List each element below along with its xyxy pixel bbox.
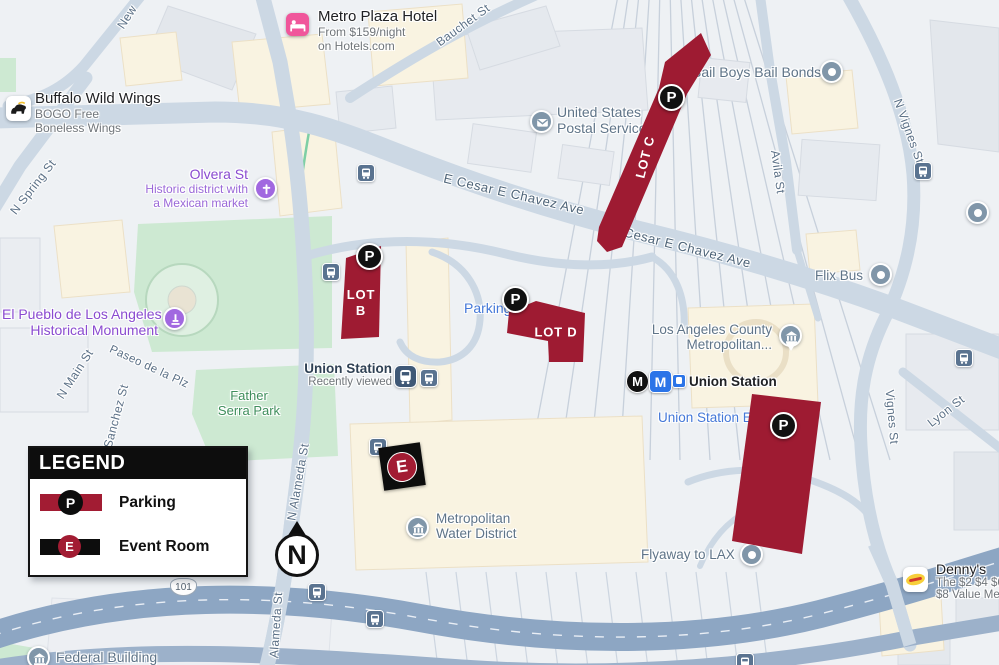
map-canvas[interactable]: N Spring St New Bauchet St E Cesar E Cha… xyxy=(0,0,999,665)
legend-event-label: Event Room xyxy=(119,538,209,556)
legend-panel: LEGEND P Parking E Event Room xyxy=(28,446,248,577)
legend-parking-label: Parking xyxy=(119,494,176,512)
legend-title: LEGEND xyxy=(30,448,246,479)
legend-parking-symbol: P xyxy=(58,490,83,515)
north-compass: N xyxy=(268,516,328,582)
legend-event-symbol: E xyxy=(58,535,81,558)
